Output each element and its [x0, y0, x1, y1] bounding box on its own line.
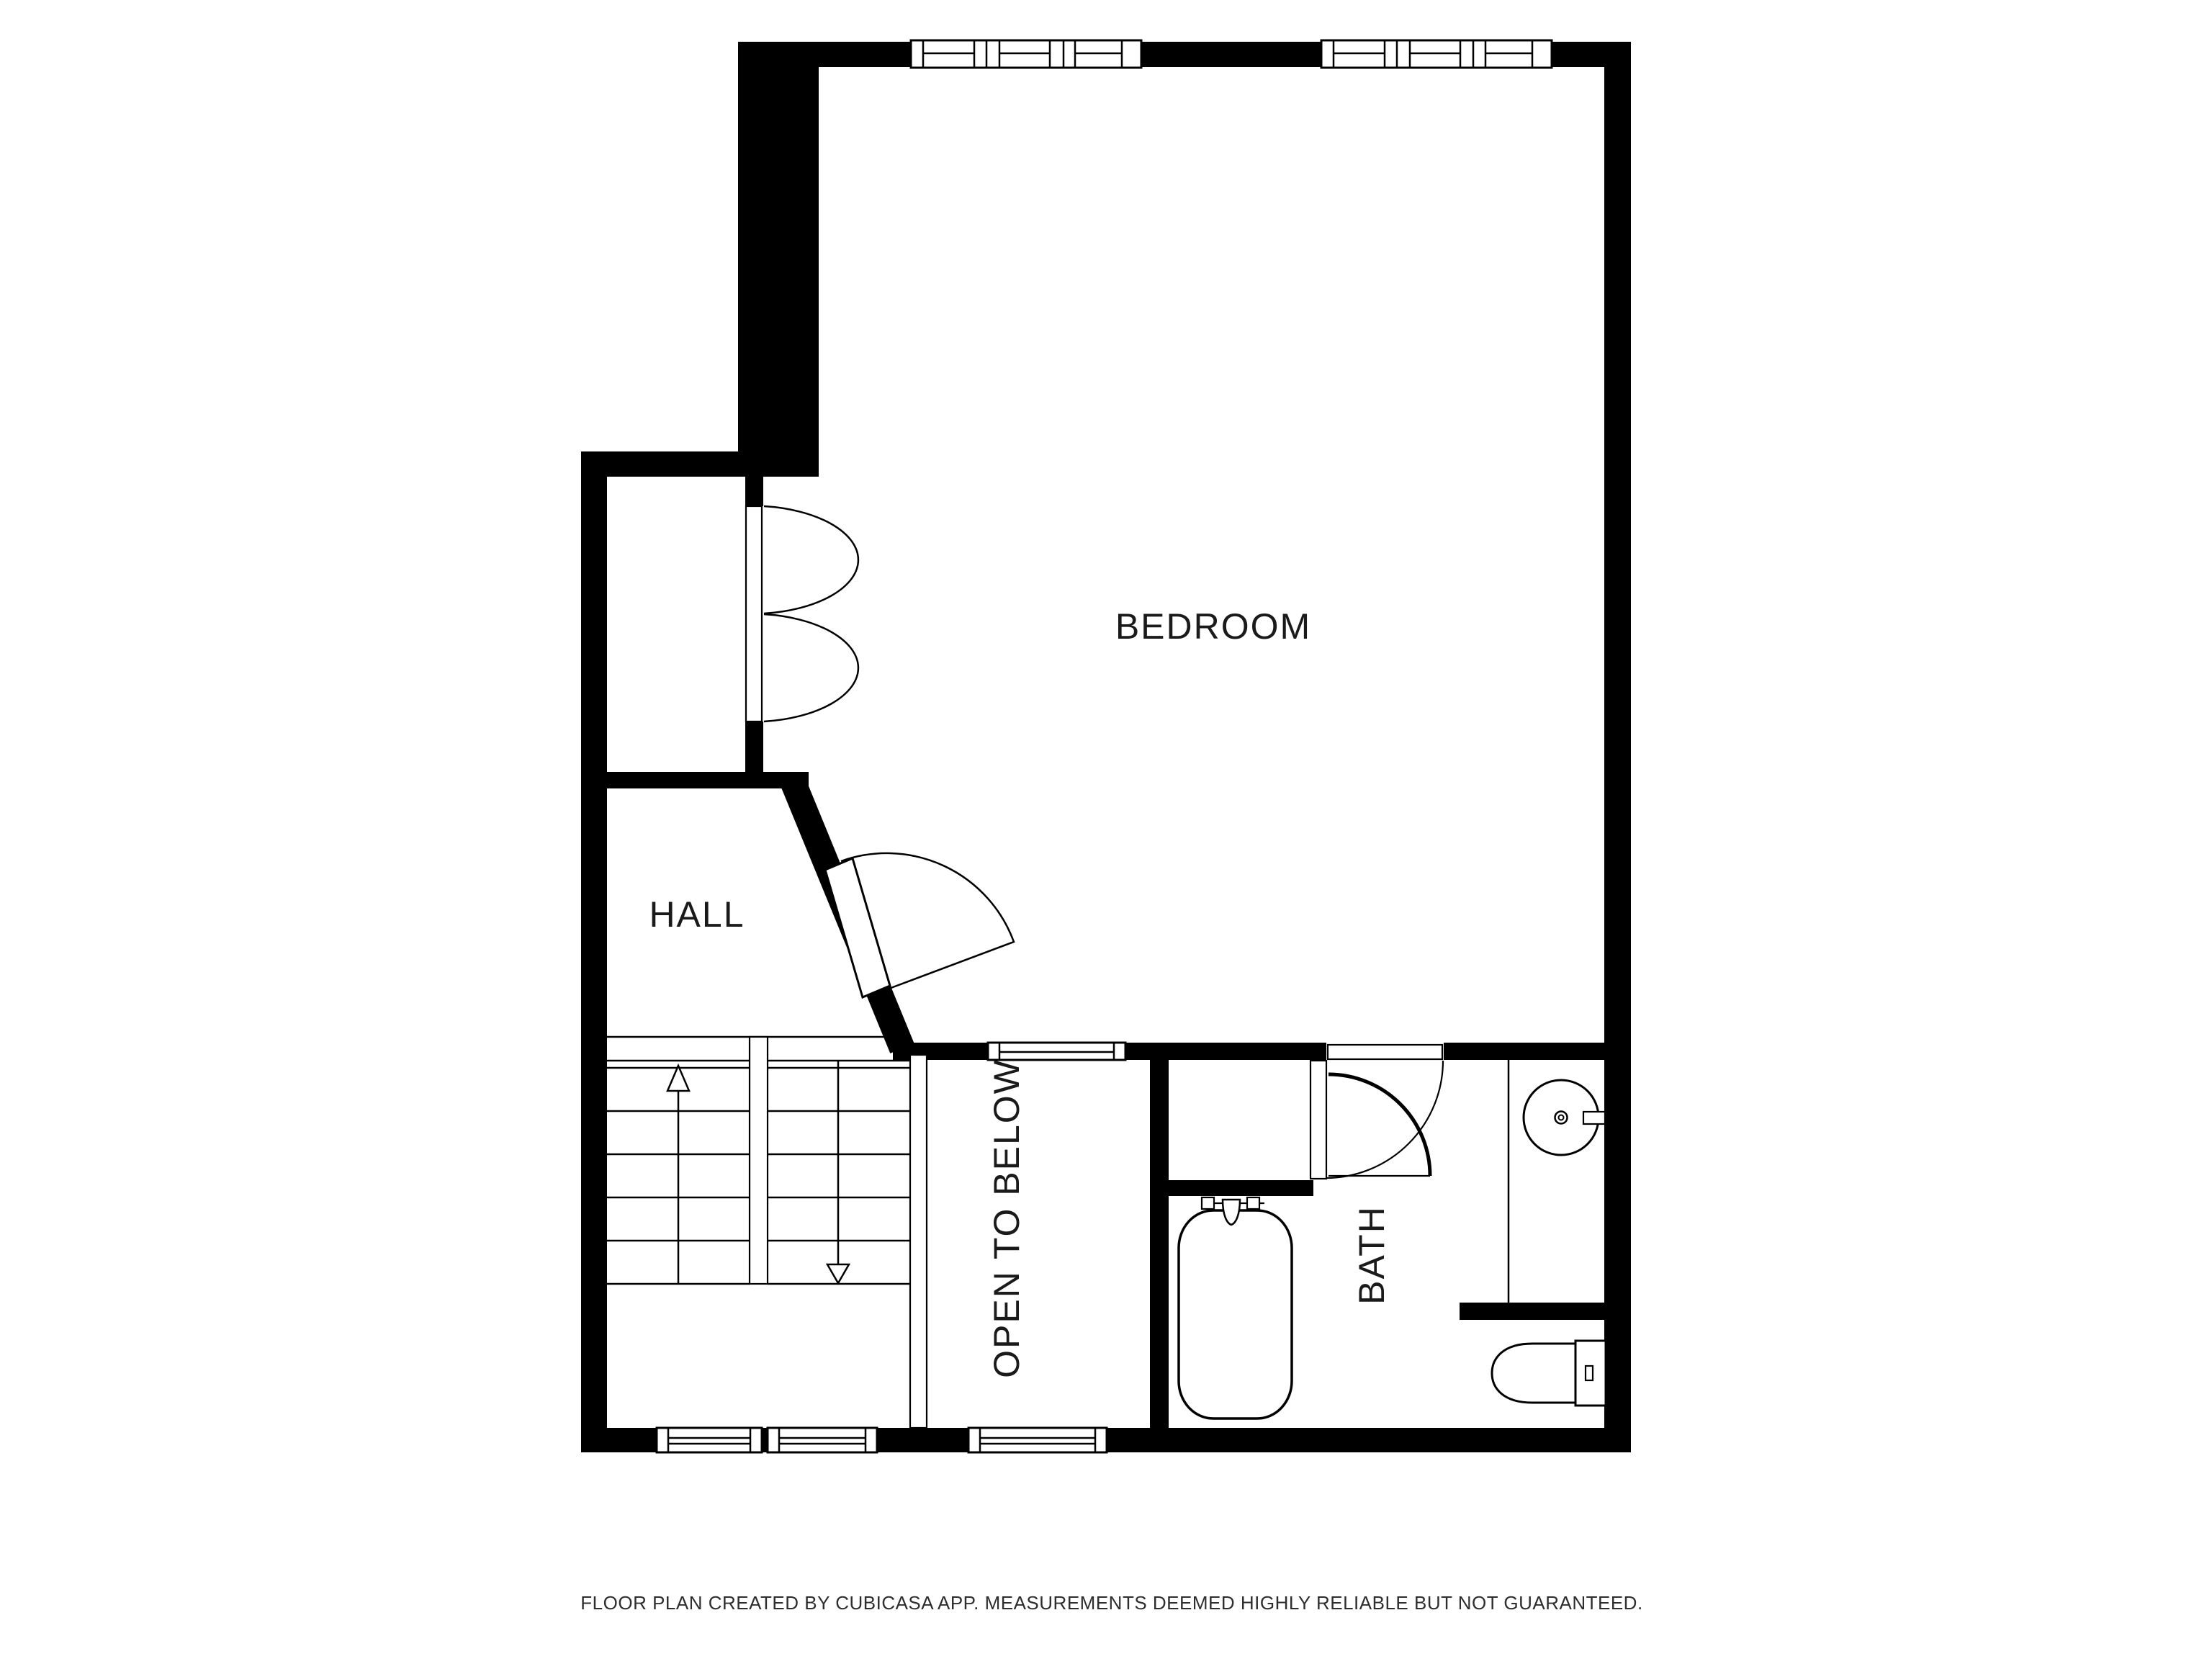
- floor-plan-drawing: BEDROOM HALL OPEN TO BELOW BATH FLOOR PL…: [0, 0, 2212, 1659]
- sink-faucet: [1583, 1112, 1605, 1124]
- staircase: [607, 1037, 910, 1284]
- footer-disclaimer: FLOOR PLAN CREATED BY CUBICASA APP. MEAS…: [580, 1592, 1642, 1614]
- staircase-down-flight: [768, 1061, 910, 1284]
- partition-shower-closet: [1310, 1061, 1326, 1179]
- room-label-bedroom: BEDROOM: [1115, 606, 1311, 647]
- window-interior-open-to-below: [988, 1043, 1125, 1060]
- toilet-flush-button: [1586, 1366, 1593, 1380]
- wall-closet-hall-divider: [607, 772, 809, 788]
- wall-shower-closet-bottom: [1152, 1180, 1313, 1196]
- sink-drain-inner: [1559, 1115, 1564, 1120]
- bathroom-vanity: [1509, 1060, 1605, 1303]
- hall-door-leaf: [825, 858, 890, 997]
- bath-door-swing-thin-arc: [1326, 1061, 1443, 1178]
- room-label-open-to-below: OPEN TO BELOW: [986, 1058, 1027, 1378]
- wall-open-to-below-right: [1150, 1060, 1169, 1428]
- floor-plan-page: BEDROOM HALL OPEN TO BELOW BATH FLOOR PL…: [0, 0, 2212, 1659]
- wall-bath-stub: [1460, 1303, 1604, 1320]
- toilet-bowl: [1492, 1344, 1575, 1403]
- wall-closet-door-jamb-top: [745, 472, 763, 506]
- window-group-top-left: [911, 40, 1141, 68]
- room-label-hall: HALL: [649, 894, 745, 935]
- window-group-top-right: [1321, 40, 1552, 68]
- staircase-center-divider: [750, 1037, 768, 1284]
- closet-door-leaf-bottom-arc: [764, 614, 858, 721]
- half-wall-stairs-open-to-below: [910, 1055, 927, 1428]
- window-bottom-left: [657, 1428, 762, 1452]
- bathtub: [1179, 1197, 1292, 1419]
- staircase-up-flight: [607, 1068, 750, 1284]
- stairs-up-arrow-icon: [667, 1066, 689, 1091]
- toilet: [1492, 1341, 1606, 1406]
- bath-door-opening: [1328, 1045, 1442, 1059]
- window-bottom-open-to-below: [968, 1428, 1107, 1452]
- wall-bedroom-left-column: [738, 42, 819, 477]
- closet-door-leaf-top-arc: [764, 506, 858, 613]
- wall-left: [581, 451, 607, 1452]
- bath-door: [1326, 1043, 1444, 1178]
- double-swing-closet-door: [746, 506, 858, 721]
- bath-door-swing-thick-arc: [1328, 1074, 1430, 1176]
- closet-door-frame: [746, 506, 762, 721]
- angled-hall-door: [825, 853, 1014, 997]
- window-bottom-middle: [768, 1428, 877, 1452]
- room-label-bath: BATH: [1352, 1205, 1392, 1305]
- wall-closet-door-jamb-bottom: [745, 721, 763, 774]
- stairs-down-arrow-icon: [827, 1264, 849, 1283]
- wall-right: [1604, 42, 1631, 1452]
